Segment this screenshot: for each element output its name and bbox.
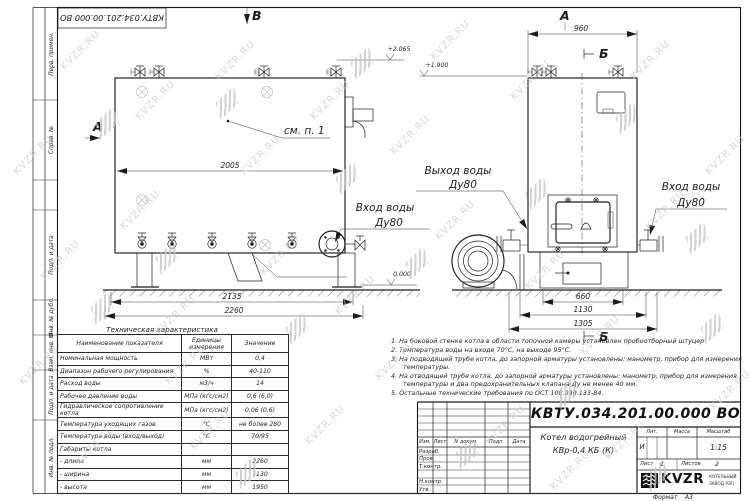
table-row: Гидравлическое сопротивление котлаМПа (к… [58,403,289,418]
mass-label: Масса [667,429,697,435]
company-sub-line1: КОТЕЛЬНЫЙ [709,474,736,480]
sheets-label: Листов [681,461,701,467]
table-row: Габариты котла [58,443,289,456]
table-row: Расход водым3/ч14 [58,378,289,391]
note-line: 2. Температура воды на входе 70°С, на вы… [391,346,743,354]
table-row: Температура уходящих газов°Сне более 280 [58,418,289,431]
technical-notes: 1. На боковой стенке котла в области топ… [391,337,743,398]
company-logo-text: KVZR [661,471,704,487]
table-row: Температура воды (вход/выход)°С70/95 [58,430,289,443]
drawing-sheet: { "designation": "КВТУ.034.201.00.000 ВО… [0,0,750,500]
table-row: - высотамм1950 [58,481,289,494]
sign-row-prov: Пров. [419,456,434,462]
product-name-line1: Котел водогрейный [530,432,637,442]
sheets-value: 2 [715,461,719,468]
note-line: 1. На боковой стенке котла в области топ… [391,337,743,345]
rev-header-podp: Подп. [485,439,508,445]
spec-header-row: Наименование показателя Единицы измерени… [58,335,289,353]
sheet-value: 1 [660,461,664,468]
note-line: 4. На отводящей трубе котла, до запорной… [391,372,743,388]
rev-header-ndoc: N докум. [447,439,485,445]
rev-header-list: Лист [433,439,447,445]
rev-header-data: Дата [508,439,530,445]
spec-table-title: Техническая характеристика [62,325,262,334]
sign-row-razrab: Разраб. [419,449,440,455]
kvzr-logo-icon [641,473,658,488]
lit-label: Лит. [637,429,667,435]
sign-row-tkontr: Т.контр. [419,464,442,470]
sign-row-nkontr: Н.контр. [419,479,443,485]
spec-header: Единицы измерения [182,335,232,353]
spec-header: Значение [232,335,289,353]
table-row: Рабочее давление водыМПа (кгс/см2)0,6 (6… [58,390,289,403]
title-block-designation: КВТУ.034.201.00.000 ВО [530,406,741,422]
sign-row-utv: Утв. [419,487,430,493]
rev-header-izm: Изм. [417,439,433,445]
table-row: Диапазон рабочего регулирования%40-110 [58,365,289,378]
table-row: - длинамм2260 [58,456,289,469]
note-line: 5. Остальные технические требования по О… [391,389,743,397]
table-row: Номинальная мощностьМВт0,4 [58,353,289,366]
spec-table: Наименование показателя Единицы измерени… [57,334,289,494]
scale-label: Масштаб [697,429,740,435]
note-line: 3. На подводящей трубе котла, до запорно… [391,355,743,371]
spec-header: Наименование показателя [58,335,182,353]
table-row: - ширинамм1130 [58,468,289,481]
scale-value: 1:15 [697,443,740,452]
lit-value: И [637,443,647,451]
company-sub-line2: ЗАВОД РЭП [709,481,734,487]
text-overlays: Техническая характеристика Наименование … [0,0,750,500]
sheet-label: Лист [640,461,653,467]
product-name-line2: КВр-0,4 КБ (К) [530,445,637,455]
